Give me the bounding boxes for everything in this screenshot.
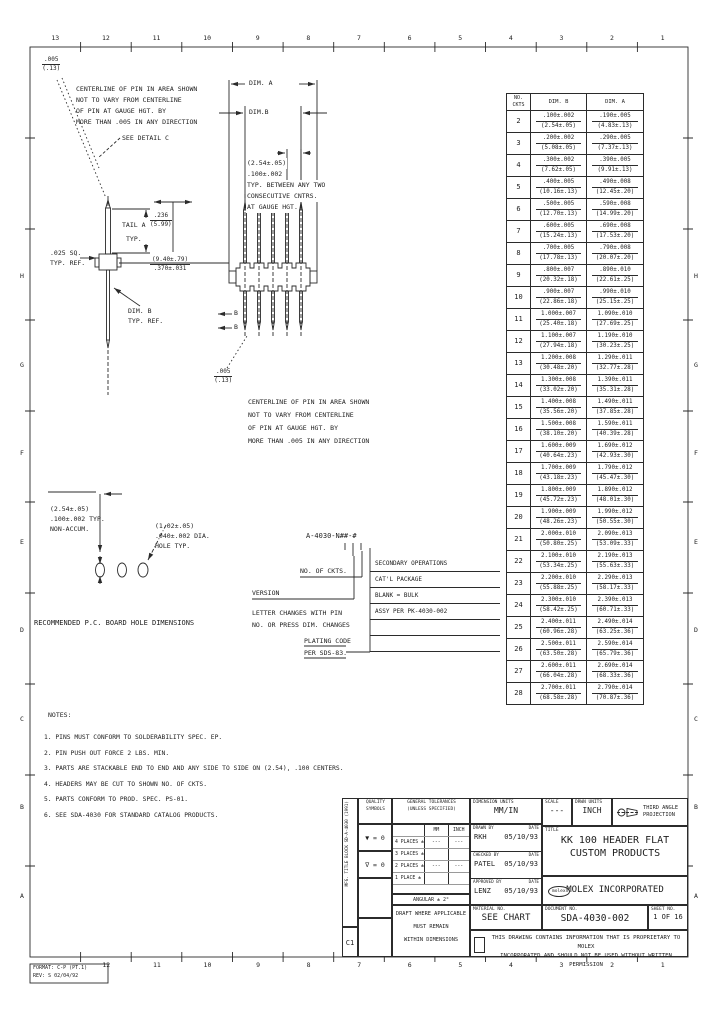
pcb-pitch-dimension: (2.54±.05).100±.002 TYP.NON-ACCUM. — [50, 484, 105, 534]
version-note-line2: NO. OR PRESS DIM. CHANGES — [252, 622, 350, 629]
dim-a-cell: .990±.010(25.15±.25) — [587, 287, 643, 308]
version-note-line1: LETTER CHANGES WITH PIN — [252, 610, 342, 617]
tolerance-row: 3 PLACES ± — [393, 849, 469, 861]
tolerance-row: 1 PLACE ± — [393, 873, 469, 885]
table-row: 27 2.600±.011(66.04±.28) 2.690±.014(68.3… — [507, 661, 643, 683]
proprietary-line2: INCORPORATED AND SHOULD NOT BE USED WITH… — [487, 952, 685, 970]
zone-number: 1 — [637, 34, 688, 42]
header-dim-a: DIM. A — [587, 94, 643, 110]
quality-symbol-1: ▼ = 0 — [358, 824, 392, 851]
zone-letter: B — [691, 803, 701, 811]
circuit-count: 3 — [507, 133, 531, 154]
draft-note-line: WITHIN DIMENSIONS — [393, 932, 469, 945]
proprietary-note-box: THIS DRAWING CONTAINS INFORMATION THAT I… — [470, 930, 688, 957]
dim-a-cell: .790±.008(20.07±.20) — [587, 243, 643, 264]
table-row: 13 1.200±.008(30.48±.20) 1.290±.011(32.7… — [507, 353, 643, 375]
notes-list: 1. PINS MUST CONFORM TO SOLDERABILITY SP… — [44, 730, 344, 823]
table-row: 6 .500±.005(12.70±.13) .590±.008(14.99±.… — [507, 199, 643, 221]
circuit-count: 11 — [507, 309, 531, 330]
table-row: 14 1.300±.008(33.02±.20) 1.390±.011(35.3… — [507, 375, 643, 397]
zone-letter: H — [691, 272, 701, 280]
scale-box: SCALE --- — [542, 798, 572, 826]
quality-symbol-empty — [358, 918, 392, 957]
pitch-note-line: TYP. BETWEEN ANY TWO — [246, 180, 326, 191]
strip-text-2: SD-A-4030 (1991) — [345, 801, 350, 842]
date-label: DATE — [529, 880, 539, 885]
section-b-marker: B — [234, 310, 238, 317]
note-item: 3. PARTS ARE STACKABLE END TO END AND AN… — [44, 761, 344, 777]
notes-header: NOTES: — [48, 712, 71, 719]
date-label: DATE — [529, 853, 539, 858]
tolerance-row: 2 PLACES ± --- --- — [393, 861, 469, 873]
personnel-role-label: APPROVED BY — [473, 880, 501, 885]
zone-letter: D — [691, 626, 701, 634]
pcb-dim-line: NON-ACCUM. — [50, 524, 105, 534]
table-row: 2 .100±.002(2.54±.05) .190±.005(4.83±.13… — [507, 111, 643, 133]
dim-ref-label: DIM. B — [128, 308, 151, 315]
tolerance-col-headers: MM INCH — [393, 825, 469, 837]
centerline-note-mid: CENTERLINE OF PIN IN AREA SHOWNNOT TO VA… — [248, 376, 369, 448]
pin-square-typref: TYP. REF. — [50, 260, 85, 267]
table-row: 28 2.700±.011(68.58±.28) 2.790±.014(70.8… — [507, 683, 643, 704]
pcb-dim-line: (1.02±.05) — [155, 521, 210, 531]
part-number-option: ASSY PER PK-4030-002 — [370, 604, 500, 620]
note-line: CENTERLINE OF PIN IN AREA SHOWN — [76, 84, 197, 95]
zone-number: 9 — [233, 961, 284, 969]
personnel-group: APPROVED BYDATE LENZ05/10/93 — [471, 879, 541, 906]
circuit-count: 22 — [507, 551, 531, 572]
dim-a-cell: 2.090±.013(53.09±.33) — [587, 529, 643, 550]
zone-letter: D — [17, 626, 27, 634]
engineering-drawing-page: 13121110987654321 121110987654321 HGFEDC… — [0, 0, 720, 1012]
tolerance-table: MM INCH 4 PLACES ± --- --- 3 PLACES ± 2 … — [392, 824, 470, 894]
circuit-count: 27 — [507, 661, 531, 682]
angular-tolerance: ANGULAR ± 2° — [392, 894, 470, 905]
dim-a-cell: 1.390±.011(35.31±.28) — [587, 375, 643, 396]
see-detail-c-label: SEE DETAIL C — [122, 135, 169, 142]
version-label: VERSION — [252, 590, 279, 597]
zone-letters-left: HGFEDCBA — [17, 272, 27, 900]
mid-dimension-fraction: (9.40±.79) .370±.031 — [150, 256, 190, 273]
tolerance-rows: 4 PLACES ± --- --- 3 PLACES ± 2 PLACES ±… — [393, 837, 469, 885]
zone-number: 13 — [30, 34, 81, 42]
note-line: CENTERLINE OF PIN IN AREA SHOWN — [248, 396, 369, 409]
tolerance-fraction: .005 (.13) — [214, 368, 232, 385]
zone-letter: A — [691, 892, 701, 900]
zone-letter: A — [17, 892, 27, 900]
tolerance-inch: .005 — [42, 56, 60, 65]
table-row: 25 2.400±.011(60.96±.28) 2.490±.014(63.2… — [507, 617, 643, 639]
dim-b-cell: .900±.007(22.86±.18) — [531, 287, 587, 308]
dim-b-cell: .100±.002(2.54±.05) — [531, 111, 587, 132]
personnel-role-label: DRAWN BY — [473, 826, 494, 831]
table-row: 7 .600±.005(15.24±.13) .690±.008(17.53±.… — [507, 221, 643, 243]
circuit-count: 20 — [507, 507, 531, 528]
dim-a-cell: .190±.005(4.83±.13) — [587, 111, 643, 132]
dim-a-cell: 2.390±.013(60.71±.33) — [587, 595, 643, 616]
personnel-date: 05/10/93 — [504, 860, 538, 868]
zone-number: 4 — [485, 34, 536, 42]
dim-a-cell: 1.990±.012(50.55±.30) — [587, 507, 643, 528]
table-row: 11 1.000±.007(25.40±.18) 1.090±.010(27.6… — [507, 309, 643, 331]
dim-a-cell: 1.490±.011(37.85±.28) — [587, 397, 643, 418]
dim-a-cell: 1.690±.012(42.93±.30) — [587, 441, 643, 462]
zone-number: 10 — [182, 34, 233, 42]
zone-number: 11 — [132, 961, 183, 969]
zone-number: 6 — [384, 34, 435, 42]
table-row: 22 2.100±.010(53.34±.25) 2.190±.013(55.6… — [507, 551, 643, 573]
circuit-count: 21 — [507, 529, 531, 550]
dim-b-cell: 1.400±.008(35.56±.20) — [531, 397, 587, 418]
note-line: OF PIN AT GAUGE HGT. BY — [76, 106, 197, 117]
tail-mm: (5.99) — [150, 221, 172, 229]
circuit-count: 9 — [507, 265, 531, 286]
tolerance-row: 4 PLACES ± --- --- — [393, 837, 469, 849]
zone-letter: C — [17, 715, 27, 723]
dim-b-cell: .700±.005(17.78±.13) — [531, 243, 587, 264]
pin-square-label: .025 SQ. — [50, 250, 81, 257]
personnel-date: 05/10/93 — [504, 887, 538, 895]
zone-number: 11 — [131, 34, 182, 42]
dim-a-label: DIM. A — [248, 80, 273, 87]
zone-letter: G — [691, 361, 701, 369]
note-item: 2. PIN PUSH OUT FORCE 2 LBS. MIN. — [44, 746, 344, 762]
dim-b-cell: 1.600±.009(40.64±.23) — [531, 441, 587, 462]
note-line: OF PIN AT GAUGE HGT. BY — [248, 422, 369, 435]
pcb-hole-dimension: (1.02±.05).040±.002 DIA.HOLE TYP. — [155, 501, 210, 551]
dim-b-label: DIM.B — [248, 109, 270, 116]
zone-number: 10 — [182, 961, 233, 969]
dim-a-cell: .590±.008(14.99±.20) — [587, 199, 643, 220]
part-number-option — [370, 636, 500, 652]
molex-logo: molex — [548, 886, 570, 897]
header-dim-b: DIM. B — [531, 94, 587, 110]
dim-a-cell: .290±.005(7.37±.13) — [587, 133, 643, 154]
circuit-count: 13 — [507, 353, 531, 374]
dim-b-cell: .800±.007(20.32±.18) — [531, 265, 587, 286]
zone-number: 12 — [81, 34, 132, 42]
size-table-header: NO.CKTS DIM. B DIM. A — [507, 94, 643, 111]
dim-a-cell: 2.690±.014(68.33±.36) — [587, 661, 643, 682]
general-tolerances-header: GENERAL TOLERANCES (UNLESS SPECIFIED) — [392, 798, 470, 824]
tail-inch: .236 — [150, 212, 172, 221]
personnel-name: RKH — [474, 833, 487, 841]
drawing-size-letter: C1 — [342, 927, 358, 957]
zone-letter: E — [691, 538, 701, 546]
table-row: 19 1.800±.009(45.72±.23) 1.890±.012(48.0… — [507, 485, 643, 507]
dim-b-cell: 2.300±.010(58.42±.25) — [531, 595, 587, 616]
table-row: 8 .700±.005(17.78±.13) .790±.008(20.07±.… — [507, 243, 643, 265]
circuit-count: 12 — [507, 331, 531, 352]
table-row: 17 1.600±.009(40.64±.23) 1.690±.012(42.9… — [507, 441, 643, 463]
tolerance-mm: (.13) — [42, 65, 60, 73]
tolerance-fraction: .005 (.13) — [42, 56, 60, 73]
dim-a-cell: 2.790±.014(70.87±.36) — [587, 683, 643, 704]
pcb-dim-line: .040±.002 DIA. — [155, 531, 210, 541]
circuit-count: 8 — [507, 243, 531, 264]
table-row: 20 1.900±.009(48.26±.23) 1.990±.012(50.5… — [507, 507, 643, 529]
strip-text-1: MFG. TITLE BLOCK — [345, 845, 350, 886]
sheet-no-box: SHEET NO. 1 OF 16 — [648, 905, 688, 930]
table-row: 26 2.500±.011(63.50±.28) 2.590±.014(65.7… — [507, 639, 643, 661]
zone-letter: F — [17, 449, 27, 457]
circuit-count: 14 — [507, 375, 531, 396]
circuit-count: 23 — [507, 573, 531, 594]
note-item: 6. SEE SDA-4030 FOR STANDARD CATALOG PRO… — [44, 808, 344, 824]
dim-a-cell: 2.490±.014(63.25±.36) — [587, 617, 643, 638]
projection-box: THIRD ANGLE PROJECTION — [612, 798, 688, 826]
dim-a-cell: .390±.005(9.91±.13) — [587, 155, 643, 176]
dimension-units-box: DIMENSION UNITS MM/IN — [470, 798, 542, 824]
draft-note-line: DRAFT WHERE APPLICABLE — [393, 906, 469, 919]
personnel-group: DRAWN BYDATE RKH05/10/93 — [471, 825, 541, 852]
personnel-name: PATEL — [474, 860, 495, 868]
dim-a-cell: 1.090±.010(27.69±.25) — [587, 309, 643, 330]
drwn-units-box: DRWN UNITS INCH — [572, 798, 612, 826]
dim-b-cell: 1.000±.007(25.40±.18) — [531, 309, 587, 330]
sheet-number: 1 OF 16 — [649, 913, 687, 921]
proprietary-line1: THIS DRAWING CONTAINS INFORMATION THAT I… — [487, 934, 685, 952]
dim-b-cell: 1.800±.009(45.72±.23) — [531, 485, 587, 506]
circuit-count: 19 — [507, 485, 531, 506]
personnel-name: LENZ — [474, 887, 491, 895]
circuit-count: 10 — [507, 287, 531, 308]
dim-a-cell: 1.590±.011(40.39±.28) — [587, 419, 643, 440]
dim-a-cell: .690±.008(17.53±.20) — [587, 221, 643, 242]
tail-typ-label: TYP. — [126, 236, 142, 243]
quality-symbol-2: ∇ = 0 — [358, 851, 392, 878]
zone-letter: F — [691, 449, 701, 457]
part-number-option: BLANK = BULK — [370, 588, 500, 604]
dim-b-cell: 1.100±.007(27.94±.18) — [531, 331, 587, 352]
dim-b-cell: .200±.002(5.08±.05) — [531, 133, 587, 154]
table-row: 23 2.200±.010(55.88±.25) 2.290±.013(58.1… — [507, 573, 643, 595]
pitch-note-line: (2.54±.05) — [246, 158, 287, 169]
material-no-box: MATERIAL NO. SEE CHART — [470, 905, 542, 930]
part-number-option: CAT'L PACKAGE — [370, 572, 500, 588]
pcb-dim-line: (2.54±.05) — [50, 504, 105, 514]
note-item: 4. HEADERS MAY BE CUT TO SHOWN NO. OF CK… — [44, 777, 344, 793]
part-number-callout: A-4030-N##-# — [306, 533, 357, 540]
dim-a-cell: .890±.010(22.61±.25) — [587, 265, 643, 286]
table-row: 9 .800±.007(20.32±.18) .890±.010(22.61±.… — [507, 265, 643, 287]
dim-a-cell: .490±.008(12.45±.20) — [587, 177, 643, 198]
dim-b-cell: 1.300±.008(33.02±.20) — [531, 375, 587, 396]
dim-b-cell: .600±.005(15.24±.13) — [531, 221, 587, 242]
part-number-options-list: SECONDARY OPERATIONSCAT'L PACKAGEBLANK =… — [370, 556, 500, 652]
zone-letter: H — [17, 272, 27, 280]
projection-text-1: THIRD ANGLE — [643, 805, 678, 812]
pitch-note-line: AT GAUGE HGT. — [246, 202, 299, 213]
dim-b-cell: 1.500±.008(38.10±.20) — [531, 419, 587, 440]
personnel-role-label: CHECKED BY — [473, 853, 499, 858]
dim-b-cell: 2.600±.011(66.04±.28) — [531, 661, 587, 682]
part-number-option: SECONDARY OPERATIONS — [370, 556, 500, 572]
table-row: 3 .200±.002(5.08±.05) .290±.005(7.37±.13… — [507, 133, 643, 155]
tolerance-inch: .005 — [214, 368, 232, 377]
zone-number: 8 — [283, 34, 334, 42]
table-row: 21 2.000±.010(50.80±.25) 2.090±.013(53.0… — [507, 529, 643, 551]
dim-b-cell: .300±.002(7.62±.05) — [531, 155, 587, 176]
revision-flag-box — [474, 937, 485, 953]
table-row: 10 .900±.007(22.86±.18) .990±.010(25.15±… — [507, 287, 643, 309]
dim-a-cell: 1.890±.012(48.01±.30) — [587, 485, 643, 506]
document-no-box: DOCUMENT NO. SDA-4030-002 — [542, 905, 648, 930]
circuit-count: 25 — [507, 617, 531, 638]
zone-letter: B — [17, 803, 27, 811]
personnel-group: CHECKED BYDATE PATEL05/10/93 — [471, 852, 541, 879]
dim-ref-typref: TYP. REF. — [128, 318, 163, 325]
circuit-count: 26 — [507, 639, 531, 660]
zone-number: 2 — [587, 34, 638, 42]
pitch-note-line: CONSECUTIVE CNTRS. — [246, 191, 318, 202]
tail-dimension-fraction: .236 (5.99) — [150, 212, 172, 229]
dim-a-cell: 1.290±.011(32.77±.28) — [587, 353, 643, 374]
table-row: 15 1.400±.008(35.56±.20) 1.490±.011(37.8… — [507, 397, 643, 419]
circuit-size-table: NO.CKTS DIM. B DIM. A 2 .100±.002(2.54±.… — [506, 93, 644, 705]
zone-letter: G — [17, 361, 27, 369]
circuit-count: 24 — [507, 595, 531, 616]
dim-b-cell: 2.700±.011(68.58±.28) — [531, 683, 587, 704]
dim-a-cell: 1.790±.012(45.47±.30) — [587, 463, 643, 484]
dim-a-cell: 2.590±.014(65.79±.36) — [587, 639, 643, 660]
tail-label: TAIL A — [122, 222, 145, 229]
zone-number: 12 — [81, 961, 132, 969]
pcb-caption: RECOMMENDED P.C. BOARD HOLE DIMENSIONS — [34, 620, 194, 627]
centerline-note-top: CENTERLINE OF PIN IN AREA SHOWNNOT TO VA… — [76, 64, 197, 128]
part-number-option — [370, 620, 500, 636]
mid-dim-inch: .370±.031 — [150, 265, 190, 273]
table-row: 18 1.700±.009(43.18±.23) 1.790±.012(45.4… — [507, 463, 643, 485]
dim-a-cell: 2.290±.013(58.17±.33) — [587, 573, 643, 594]
quality-symbol-empty — [358, 878, 392, 918]
projection-text-2: PROJECTION — [643, 812, 678, 819]
draft-note: DRAFT WHERE APPLICABLEMUST REMAINWITHIN … — [392, 905, 470, 957]
note-line: MORE THAN .005 IN ANY DIRECTION — [248, 435, 369, 448]
tolerance-mm: (.13) — [214, 377, 232, 385]
zone-number: 5 — [435, 34, 486, 42]
zone-number: 7 — [334, 34, 385, 42]
circuit-count: 6 — [507, 199, 531, 220]
size-table-body: 2 .100±.002(2.54±.05) .190±.005(4.83±.13… — [507, 111, 643, 704]
circuit-count: 5 — [507, 177, 531, 198]
quality-symbols-header: QUALITY SYMBOLS — [358, 798, 392, 824]
title-block-vertical-strip: MFG. TITLE BLOCK SD-A-4030 (1991) — [342, 798, 358, 927]
circuit-count: 16 — [507, 419, 531, 440]
dim-a-cell: 1.190±.010(30.23±.25) — [587, 331, 643, 352]
dim-b-cell: 2.200±.010(55.88±.25) — [531, 573, 587, 594]
zone-number: 7 — [334, 961, 385, 969]
third-angle-projection-icon — [616, 805, 640, 824]
pitch-note-line: .100±.002 — [246, 169, 283, 180]
personnel-column: DRAWN BYDATE RKH05/10/93 CHECKED BYDATE … — [470, 824, 542, 905]
document-number: SDA-4030-002 — [543, 913, 647, 924]
note-line: NOT TO VARY FROM CENTERLINE — [248, 409, 369, 422]
zone-number: 3 — [536, 34, 587, 42]
dim-b-cell: 1.700±.009(43.18±.23) — [531, 463, 587, 484]
no-of-ckts-label: NO. OF CKTS. — [300, 568, 347, 575]
plating-code-ref: PER SDS-83. — [304, 650, 347, 657]
header-no-ckts: NO.CKTS — [507, 94, 531, 110]
circuit-count: 2 — [507, 111, 531, 132]
dim-b-cell: 2.100±.010(53.34±.25) — [531, 551, 587, 572]
zone-number: 8 — [283, 961, 334, 969]
dim-b-cell: 2.400±.011(60.96±.28) — [531, 617, 587, 638]
zone-number: 6 — [384, 961, 435, 969]
circuit-count: 15 — [507, 397, 531, 418]
zone-number: 9 — [232, 34, 283, 42]
note-line: NOT TO VARY FROM CENTERLINE — [76, 95, 197, 106]
corner-stamp-line2: REV: S 02/04/92 — [33, 974, 78, 979]
circuit-count: 18 — [507, 463, 531, 484]
dim-b-cell: .400±.005(10.16±.13) — [531, 177, 587, 198]
dim-a-cell: 2.190±.013(55.63±.33) — [587, 551, 643, 572]
dim-b-cell: 1.200±.008(30.48±.20) — [531, 353, 587, 374]
dim-b-cell: .500±.005(12.70±.13) — [531, 199, 587, 220]
circuit-count: 28 — [507, 683, 531, 704]
note-item: 1. PINS MUST CONFORM TO SOLDERABILITY SP… — [44, 730, 344, 746]
personnel-date: 05/10/93 — [504, 833, 538, 841]
dim-b-cell: 1.900±.009(48.26±.23) — [531, 507, 587, 528]
dim-b-cell: 2.500±.011(63.50±.28) — [531, 639, 587, 660]
mid-dim-mm: (9.40±.79) — [150, 256, 190, 265]
title-box: TITLE KK 100 HEADER FLAT CUSTOM PRODUCTS — [542, 826, 688, 876]
table-row: 5 .400±.005(10.16±.13) .490±.008(12.45±.… — [507, 177, 643, 199]
zone-numbers-top: 13121110987654321 — [30, 34, 688, 42]
zone-letters-right: HGFEDCBA — [691, 272, 701, 900]
date-label: DATE — [529, 826, 539, 831]
drawing-title-line2: CUSTOM PRODUCTS — [543, 847, 687, 860]
plating-code-label: PLATING CODE — [304, 638, 351, 645]
company-box: molex MOLEX INCORPORATED — [542, 876, 688, 905]
circuit-count: 4 — [507, 155, 531, 176]
circuit-count: 17 — [507, 441, 531, 462]
pcb-dim-line: .100±.002 TYP. — [50, 514, 105, 524]
note-line: MORE THAN .005 IN ANY DIRECTION — [76, 117, 197, 128]
table-row: 24 2.300±.010(58.42±.25) 2.390±.013(60.7… — [507, 595, 643, 617]
section-b-marker: B — [234, 324, 238, 331]
drawing-title-line1: KK 100 HEADER FLAT — [543, 834, 687, 847]
zone-letter: E — [17, 538, 27, 546]
table-row: 12 1.100±.007(27.94±.18) 1.190±.010(30.2… — [507, 331, 643, 353]
note-item: 5. PARTS CONFORM TO PROD. SPEC. PS-01. — [44, 792, 344, 808]
pcb-dim-line: HOLE TYP. — [155, 541, 210, 551]
table-row: 16 1.500±.008(38.10±.20) 1.590±.011(40.3… — [507, 419, 643, 441]
pitch-note: (2.54±.05).100±.002TYP. BETWEEN ANY TWOC… — [246, 138, 326, 213]
dim-b-cell: 2.000±.010(50.80±.25) — [531, 529, 587, 550]
table-row: 4 .300±.002(7.62±.05) .390±.005(9.91±.13… — [507, 155, 643, 177]
circuit-count: 7 — [507, 221, 531, 242]
zone-letter: C — [691, 715, 701, 723]
corner-stamp-line1: FORMAT: C-P (PT.1) — [33, 966, 87, 971]
draft-note-line: MUST REMAIN — [393, 919, 469, 932]
